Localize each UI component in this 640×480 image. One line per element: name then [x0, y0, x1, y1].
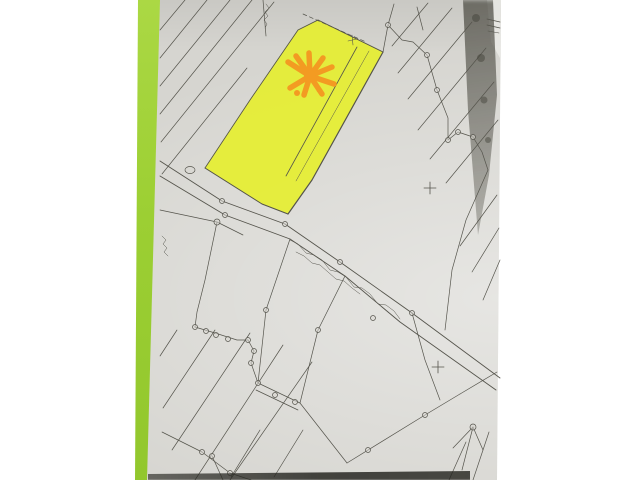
cadastral-map-photo — [0, 0, 640, 480]
marker-star-dot — [304, 70, 316, 82]
marker-star-dot — [317, 88, 322, 93]
map-linework — [0, 0, 640, 480]
marker-star-dot — [294, 90, 300, 96]
